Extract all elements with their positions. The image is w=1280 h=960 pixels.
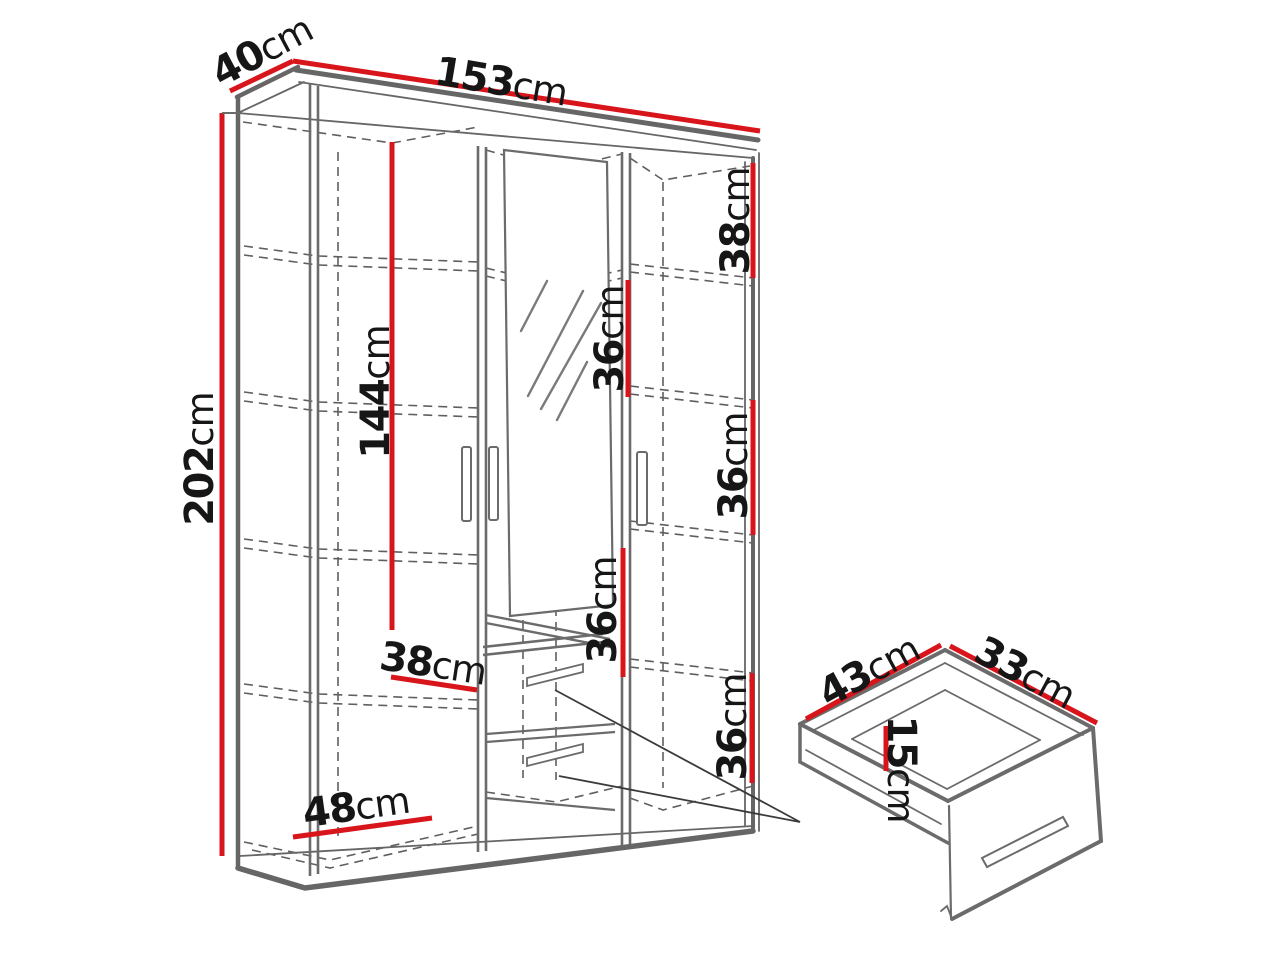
dim-value: 48 bbox=[300, 784, 359, 837]
drawer-handle-slot-2 bbox=[527, 744, 583, 766]
dim-unit: cm bbox=[352, 779, 412, 829]
dim-value: 15 bbox=[878, 715, 924, 768]
dim-unit: cm bbox=[429, 643, 489, 694]
drawer-detail-handle-slot bbox=[982, 817, 1068, 867]
dim-unit: cm bbox=[510, 63, 571, 114]
left-door-handle bbox=[462, 447, 471, 521]
dim-label-mirror-section-lower: 36cm bbox=[583, 556, 623, 663]
dim-unit: cm bbox=[355, 325, 398, 379]
right-door-handle bbox=[637, 452, 647, 525]
dim-label-right-middle-section: 36cm bbox=[714, 412, 754, 519]
dim-value: 144 bbox=[353, 380, 399, 459]
dim-unit: cm bbox=[589, 285, 632, 339]
dim-value: 202 bbox=[177, 447, 223, 526]
dim-label-mirror-section-upper: 36cm bbox=[590, 285, 630, 392]
dim-label-height: 202cm bbox=[180, 392, 220, 525]
dim-unit: cm bbox=[715, 167, 758, 221]
drawer-pointer-lines bbox=[555, 690, 800, 822]
dim-unit: cm bbox=[713, 412, 756, 466]
dim-label-right-bottom-section: 36cm bbox=[713, 673, 753, 780]
dim-value: 36 bbox=[711, 467, 757, 520]
dim-value: 36 bbox=[710, 728, 756, 781]
dim-label-drawer-height: 15cm bbox=[881, 715, 921, 822]
dim-label-left-door-inner-height: 144cm bbox=[356, 325, 396, 458]
dim-value: 36 bbox=[580, 611, 626, 664]
dim-value: 36 bbox=[587, 340, 633, 393]
dim-label-right-top-section: 38cm bbox=[716, 167, 756, 274]
diagram-page: 40cm 153cm 202cm 38cm 144cm 36cm 36cm 36… bbox=[0, 0, 1280, 960]
drawer-handle-slot-1 bbox=[527, 664, 583, 686]
dim-unit: cm bbox=[582, 556, 625, 610]
dim-value: 38 bbox=[713, 222, 759, 275]
dim-unit: cm bbox=[179, 392, 222, 446]
middle-door-left-handle bbox=[489, 447, 498, 520]
dim-unit: cm bbox=[879, 768, 922, 822]
dim-value: 38 bbox=[377, 633, 436, 686]
dim-unit: cm bbox=[712, 673, 755, 727]
